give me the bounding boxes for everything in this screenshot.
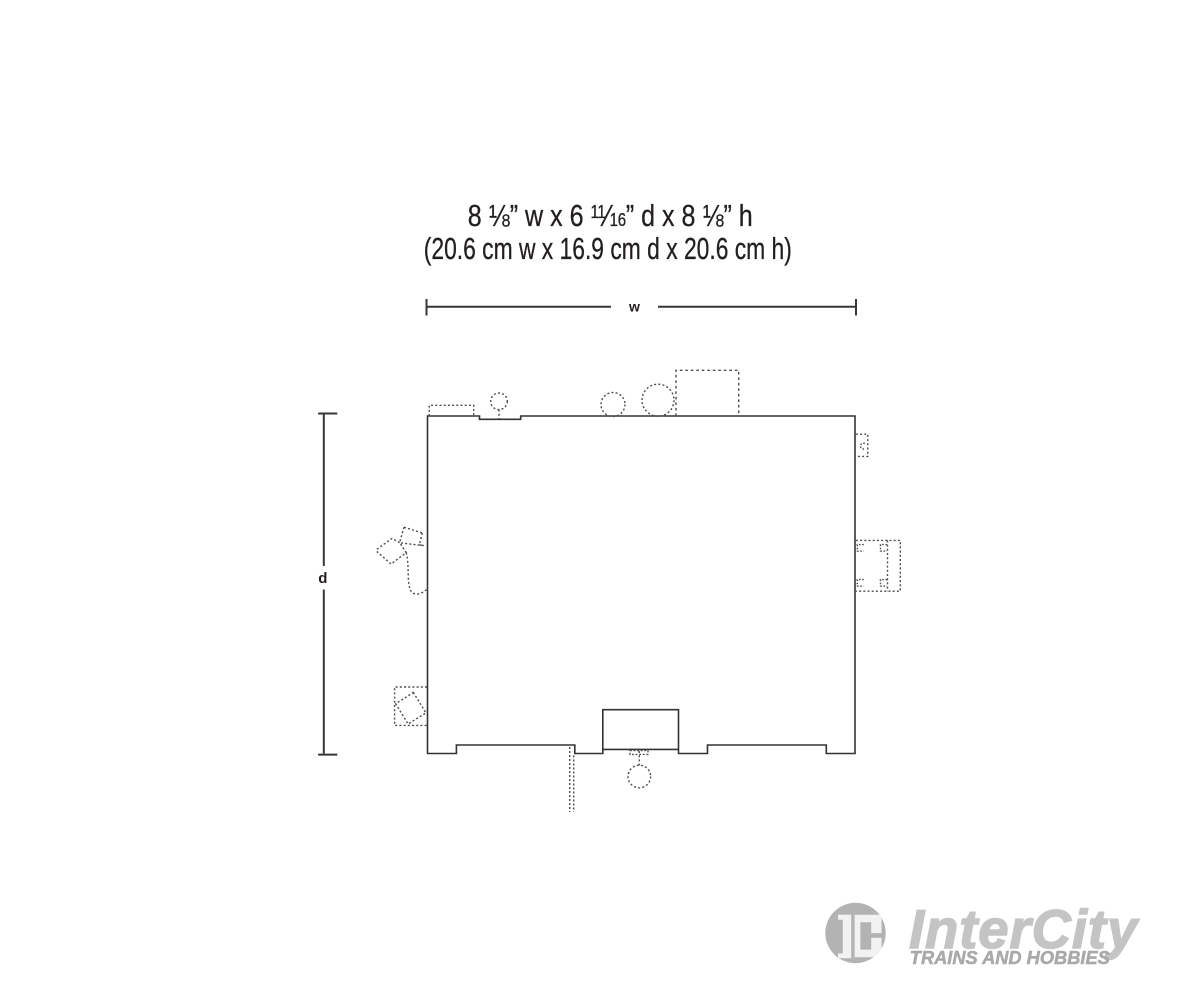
svg-text:w: w [628, 299, 640, 315]
svg-text:TRAINS AND HOBBIES: TRAINS AND HOBBIES [910, 947, 1111, 968]
svg-text:d: d [318, 570, 327, 587]
